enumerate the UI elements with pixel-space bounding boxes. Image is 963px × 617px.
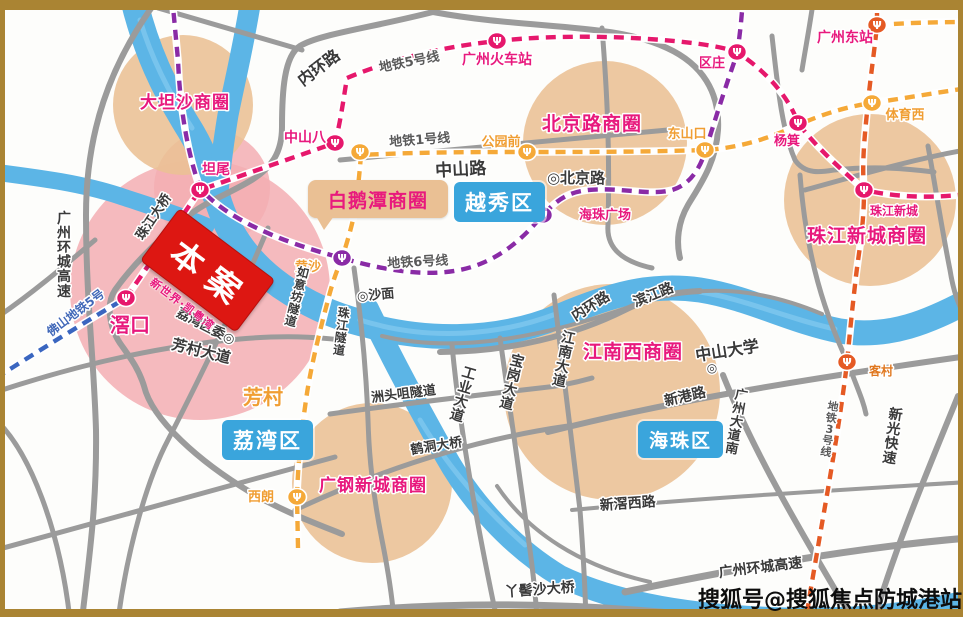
station-label: 体育西 [885,107,924,123]
road-label: 中山路 [435,158,488,182]
svg-text:Ψ: Ψ [522,146,531,159]
metro-station-icon: Ψ [838,354,857,371]
metro-station-icon: Ψ [863,95,882,112]
metro-line-label: 地铁1号线 [389,130,451,150]
road-label: 丫髻沙大桥 [504,579,576,601]
station-label: 珠江新城 [870,203,918,218]
svg-text:Ψ: Ψ [337,252,346,265]
metro-station-icon: Ψ [117,290,136,307]
svg-text:Ψ: Ψ [292,491,301,504]
road-label: 广州环城高速 [56,210,71,300]
district-box-liwan: 荔湾区 [222,420,313,460]
business-circle-label: 北京路商圈 [542,112,642,135]
business-circle-label: 江南西商圈 [583,340,683,363]
area-label: 芳村 [243,385,283,409]
svg-text:Ψ: Ψ [842,356,851,369]
landmark-label: ◎北京路 [547,169,606,187]
station-label: 杨箕 [774,133,800,149]
station-label: 西朗 [248,489,274,505]
metro-line-label: 地铁5号线 [378,48,441,75]
metro-station-icon: Ψ [696,142,715,159]
svg-text:Ψ: Ψ [732,46,741,59]
landmark-label: ◎ [707,361,717,375]
metro-line-3 [806,0,877,617]
district-box-haizhu: 海珠区 [638,421,723,458]
station-label: 区庄 [699,55,725,71]
svg-text:Ψ: Ψ [700,144,709,157]
metro-station-icon: Ψ [333,250,352,267]
watermark: 搜狐号@搜狐焦点防城港站 [698,582,958,614]
station-label: 滘口 [110,313,150,337]
metro-station-icon: Ψ [351,144,370,161]
map-svg: ΨΨΨΨΨΨΨΨΨΨΨΨΨΨΨΨ 大坦沙商圈北京路商圈珠江新城商圈江南西商圈广钢… [0,0,963,617]
svg-text:Ψ: Ψ [121,292,130,305]
svg-text:Ψ: Ψ [355,146,364,159]
svg-text:Ψ: Ψ [492,35,501,48]
station-label: 公园前 [481,134,520,150]
station-label: 海珠广场 [579,207,631,223]
metro-station-icon: Ψ [488,33,507,50]
business-circle-label: 大坦沙商圈 [140,92,230,113]
district-box-yuexiu: 越秀区 [454,182,545,222]
station-label: 广州东站 [817,29,873,46]
business-circle-label: 珠江新城商圈 [807,224,927,247]
svg-text:Ψ: Ψ [330,137,339,150]
map-canvas: ΨΨΨΨΨΨΨΨΨΨΨΨΨΨΨΨ 大坦沙商圈北京路商圈珠江新城商圈江南西商圈广钢… [0,0,963,617]
svg-text:Ψ: Ψ [793,117,802,130]
metro-station-icon: Ψ [288,489,307,506]
station-label: 中山八 [284,129,327,146]
station-label: 客村 [868,363,893,378]
metro-station-icon: Ψ [728,44,747,61]
station-label: 坦尾 [202,162,230,178]
station-label: 东山口 [667,126,706,142]
baietan-circle-bubble: 白鹅潭商圈 [308,180,448,218]
station-label: 广州火车站 [462,51,532,68]
business-circle-label: 广钢新城商圈 [319,475,427,496]
metro-station-icon: Ψ [326,135,345,152]
svg-text:Ψ: Ψ [867,97,876,110]
svg-text:Ψ: Ψ [195,184,204,197]
metro-station-icon: Ψ [789,115,808,132]
metro-line-label: 地铁6号线 [387,252,449,271]
svg-text:Ψ: Ψ [872,19,881,32]
road-label: 新光快速 [880,405,904,467]
metro-station-icon: Ψ [191,182,210,199]
road-label: 广州环城高速 [718,554,803,581]
metro-station-icon: Ψ [855,182,874,199]
landmark-label: ◎沙面 [356,286,395,304]
svg-text:Ψ: Ψ [859,184,868,197]
